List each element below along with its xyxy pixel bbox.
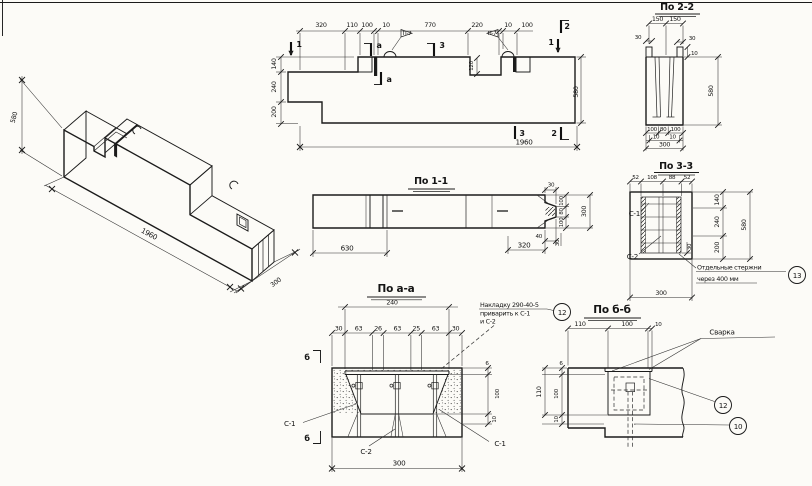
joint-slot (374, 57, 377, 76)
svg-text:12: 12 (719, 401, 728, 410)
svg-text:88: 88 (669, 175, 676, 181)
anchor-plates (348, 375, 446, 438)
svg-text:3: 3 (439, 41, 444, 50)
svg-text:10: 10 (734, 422, 743, 431)
plate-label: С-2 (360, 447, 371, 456)
svg-text:80: 80 (660, 127, 667, 133)
svg-text:приварить к С-1: приварить к С-1 (480, 310, 530, 318)
svg-text:10: 10 (382, 21, 390, 29)
svg-text:240: 240 (386, 299, 398, 307)
svg-text:200: 200 (270, 106, 278, 118)
hook-flag: П-7 (392, 30, 412, 51)
svg-text:б: б (304, 433, 310, 443)
svg-text:1: 1 (296, 40, 302, 49)
svg-text:Накладку 290-40-5: Накладку 290-40-5 (480, 301, 539, 309)
svg-text:300: 300 (269, 276, 283, 289)
isometric-view: 580 1960 300 (9, 76, 300, 293)
embed-plate (358, 57, 372, 72)
section-3-3: По 3-3 52 108 88 52 140 240 200 580 30 (627, 161, 806, 301)
s33-top-dims: 52 108 88 52 (627, 175, 695, 196)
drawing-canvas: 580 1960 300 П-7 П-7 (0, 0, 812, 486)
plate-label: С-1 (284, 419, 295, 428)
svg-text:63: 63 (432, 325, 440, 333)
svg-text:13: 13 (793, 271, 802, 280)
svg-text:100: 100 (495, 388, 501, 399)
svg-text:220: 220 (471, 21, 483, 29)
svg-text:110: 110 (535, 386, 543, 398)
svg-text:580: 580 (9, 111, 20, 124)
svg-text:140: 140 (713, 194, 721, 206)
svg-text:10: 10 (504, 21, 512, 29)
svg-text:320: 320 (518, 241, 532, 250)
elevation-view: П-7 П-7 320 110 100 10 770 220 10 100 14… (270, 20, 586, 151)
lifting-hook-icon (384, 52, 396, 57)
svg-text:10: 10 (554, 416, 560, 423)
top-lip (646, 47, 652, 57)
s33-note: Отдельные стержни через 400 мм 13 (679, 254, 806, 284)
svg-text:100: 100 (521, 21, 533, 29)
section-markers: 1 1 2 2 а а 3 3 (288, 20, 569, 140)
section-b-b: По б-б 110 100 10 Сварка 12 10 (535, 304, 775, 448)
svg-text:а: а (376, 41, 381, 50)
svg-text:Отдельные стержни: Отдельные стержни (697, 264, 762, 272)
svg-text:150: 150 (652, 15, 664, 23)
blueprint-sheet: 580 1960 300 П-7 П-7 (0, 0, 812, 486)
svg-text:1: 1 (548, 38, 554, 47)
elev-left-dims: 140 240 200 (270, 54, 354, 127)
section-title: По а-а (378, 283, 415, 295)
svg-text:63: 63 (394, 325, 402, 333)
s22-height-dim: 580 (684, 54, 722, 128)
lifting-hook-icon (230, 181, 238, 189)
svg-text:10: 10 (655, 322, 662, 328)
iso-dim-depth: 300 (234, 249, 300, 293)
svg-text:10: 10 (691, 51, 698, 57)
svg-text:300: 300 (655, 289, 667, 297)
s22-bottom-dims: 100 80 100 10 10 300 (643, 127, 686, 152)
elev-top-dims: 320 110 100 10 770 220 10 100 (296, 21, 533, 70)
svg-text:25: 25 (413, 325, 421, 333)
svg-text:200: 200 (713, 242, 721, 254)
svg-text:108: 108 (647, 175, 658, 181)
svg-text:100: 100 (621, 320, 633, 328)
svg-text:30: 30 (555, 239, 561, 246)
svg-text:63: 63 (355, 325, 363, 333)
svg-text:6: 6 (559, 361, 563, 367)
svg-text:через 400 мм: через 400 мм (697, 275, 739, 283)
svg-text:30: 30 (335, 325, 343, 333)
svg-text:630: 630 (341, 244, 355, 253)
svg-text:10: 10 (669, 135, 676, 141)
rebar-label: С-1 (629, 209, 640, 218)
svg-text:100: 100 (647, 127, 658, 133)
saa-opening-dim: 240 (338, 299, 458, 310)
svg-text:30: 30 (689, 36, 696, 42)
iso-dim-height: 580 (9, 76, 62, 176)
svg-text:120: 120 (469, 60, 475, 71)
svg-text:240: 240 (713, 216, 721, 228)
svg-text:100: 100 (554, 388, 560, 399)
plate-label: С-1 (494, 439, 505, 448)
svg-text:1960: 1960 (515, 138, 533, 147)
elev-height-dim: 580 (572, 54, 586, 126)
svg-text:12: 12 (558, 308, 567, 317)
svg-text:580: 580 (740, 219, 748, 231)
svg-text:30: 30 (687, 243, 693, 250)
svg-text:и С-2: и С-2 (480, 318, 496, 326)
svg-text:110: 110 (574, 320, 586, 328)
s11-dims: 630 320 40 30 30 100 80 100 300 (310, 183, 593, 258)
svg-text:П-7: П-7 (403, 31, 413, 37)
svg-text:100: 100 (361, 21, 373, 29)
svg-text:100: 100 (559, 217, 565, 228)
saa-width-dim: 300 (329, 438, 465, 472)
svg-text:240: 240 (270, 81, 278, 93)
sbb-left-dims: 6 100 10 110 (535, 361, 607, 427)
svg-text:100: 100 (559, 195, 565, 206)
saa-top-dims: 30 63 26 63 25 63 30 (329, 309, 465, 370)
embed-plate-section (370, 195, 383, 228)
svg-text:52: 52 (632, 175, 639, 181)
svg-text:320: 320 (315, 21, 327, 29)
svg-text:40: 40 (535, 234, 542, 240)
svg-text:30: 30 (452, 325, 460, 333)
svg-text:52: 52 (684, 175, 691, 181)
svg-text:26: 26 (374, 325, 382, 333)
svg-text:а: а (386, 75, 391, 84)
section-title: По 2-2 (660, 2, 694, 13)
svg-text:2: 2 (564, 22, 569, 31)
svg-text:150: 150 (669, 15, 681, 23)
break-line (682, 368, 684, 437)
iso-dim-length: 1960 (44, 177, 252, 292)
svg-text:30: 30 (548, 183, 555, 189)
lifting-hook-icon (502, 52, 514, 57)
svg-text:100: 100 (671, 127, 682, 133)
svg-text:110: 110 (346, 21, 358, 29)
section-title: По 1-1 (414, 176, 448, 187)
svg-text:580: 580 (707, 85, 715, 97)
section-2-2: По 2-2 150 150 30 30 10 100 80 100 10 10… (635, 2, 722, 151)
svg-text:580: 580 (572, 86, 580, 98)
rebar-lines (653, 57, 675, 117)
lifting-hook-icon (133, 126, 141, 134)
section-a-a: По а-а 240 30 63 26 63 25 63 30 (284, 283, 571, 472)
svg-text:140: 140 (270, 58, 278, 70)
section-1-1: По 1-1 630 320 40 30 30 100 80 100 300 (310, 176, 593, 257)
saa-cut-markers: б б (304, 351, 320, 444)
sbb-top-dims: 110 100 10 (565, 320, 662, 368)
embed-plate (516, 57, 530, 72)
svg-text:2: 2 (551, 129, 556, 138)
elev-length-dim: 1960 (297, 126, 580, 151)
svg-text:80: 80 (559, 208, 565, 215)
section-title: По б-б (593, 304, 630, 316)
s33-width-dim: 300 (627, 260, 695, 301)
section-title: По 3-3 (659, 161, 693, 172)
weld-note: Сварка (612, 328, 775, 372)
svg-text:6: 6 (485, 361, 489, 367)
svg-text:б: б (304, 352, 310, 362)
svg-text:Сварка: Сварка (709, 328, 734, 337)
svg-text:3: 3 (519, 129, 524, 138)
svg-text:770: 770 (424, 21, 436, 29)
svg-text:300: 300 (393, 459, 407, 468)
joint-slot (513, 57, 516, 72)
svg-text:П-7: П-7 (488, 31, 498, 37)
svg-text:300: 300 (659, 141, 671, 149)
top-lip (677, 47, 683, 57)
svg-text:10: 10 (492, 416, 498, 423)
rebar-label: С-2 (627, 252, 638, 261)
svg-text:300: 300 (580, 206, 588, 218)
svg-text:30: 30 (635, 35, 642, 41)
